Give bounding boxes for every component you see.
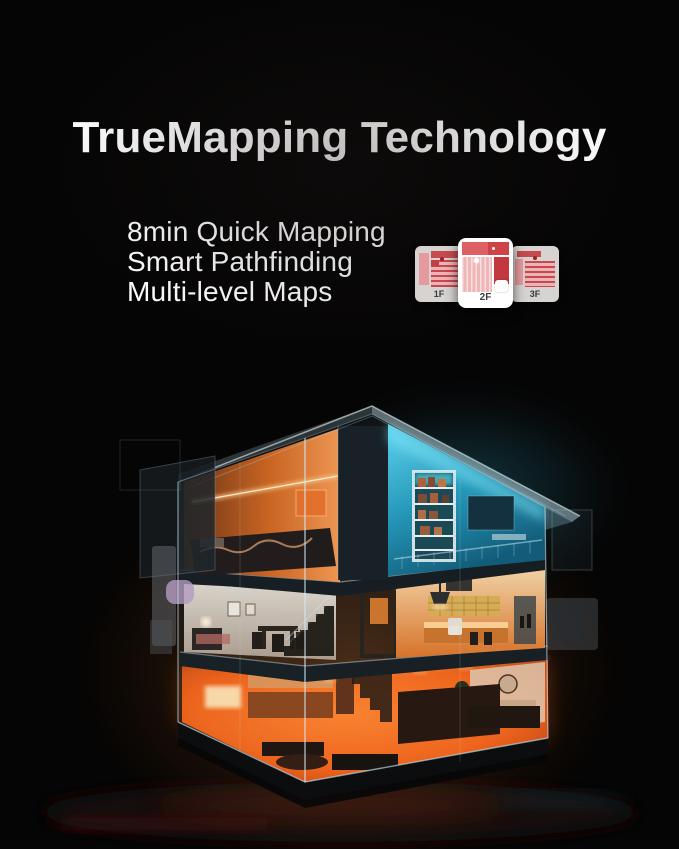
feature-quick-mapping: 8min Quick Mapping [127,217,386,247]
map-room [515,259,523,285]
robot-position-dot [533,256,537,260]
house-cutaway-svg [0,370,679,849]
floor-map-1f-thumbnail [419,251,458,287]
page-title: TrueMapping Technology [0,116,679,160]
map-room [462,242,509,255]
floor-map-2f-thumbnail [462,242,509,292]
floor-card-2f: 2F [458,238,513,308]
feature-list: 8min Quick Mapping Smart Pathfinding Mul… [127,217,386,307]
map-cleaning-path [525,261,555,287]
multi-level-map-cards: 1F 2F 3F [414,238,560,310]
floor-card-label: 3F [511,289,559,299]
floor-card-1f: 1F [415,246,463,302]
floor-card-label: 2F [458,292,513,303]
map-dot [492,247,495,250]
ad-banner: TrueMapping Technology 8min Quick Mappin… [0,0,679,849]
map-room [431,251,458,258]
dock-icon [495,280,508,292]
robot-position-dot [474,258,479,263]
robot-position-dot [440,257,444,261]
map-room [517,251,541,257]
floor-card-3f: 3F [511,246,559,302]
map-room [419,253,429,285]
feature-multi-level-maps: Multi-level Maps [127,277,386,307]
feature-smart-pathfinding: Smart Pathfinding [127,247,386,277]
map-room [431,260,439,266]
floor-map-3f-thumbnail [515,251,555,287]
floor-card-label: 1F [415,289,463,299]
house-cutaway-illustration [0,370,679,849]
